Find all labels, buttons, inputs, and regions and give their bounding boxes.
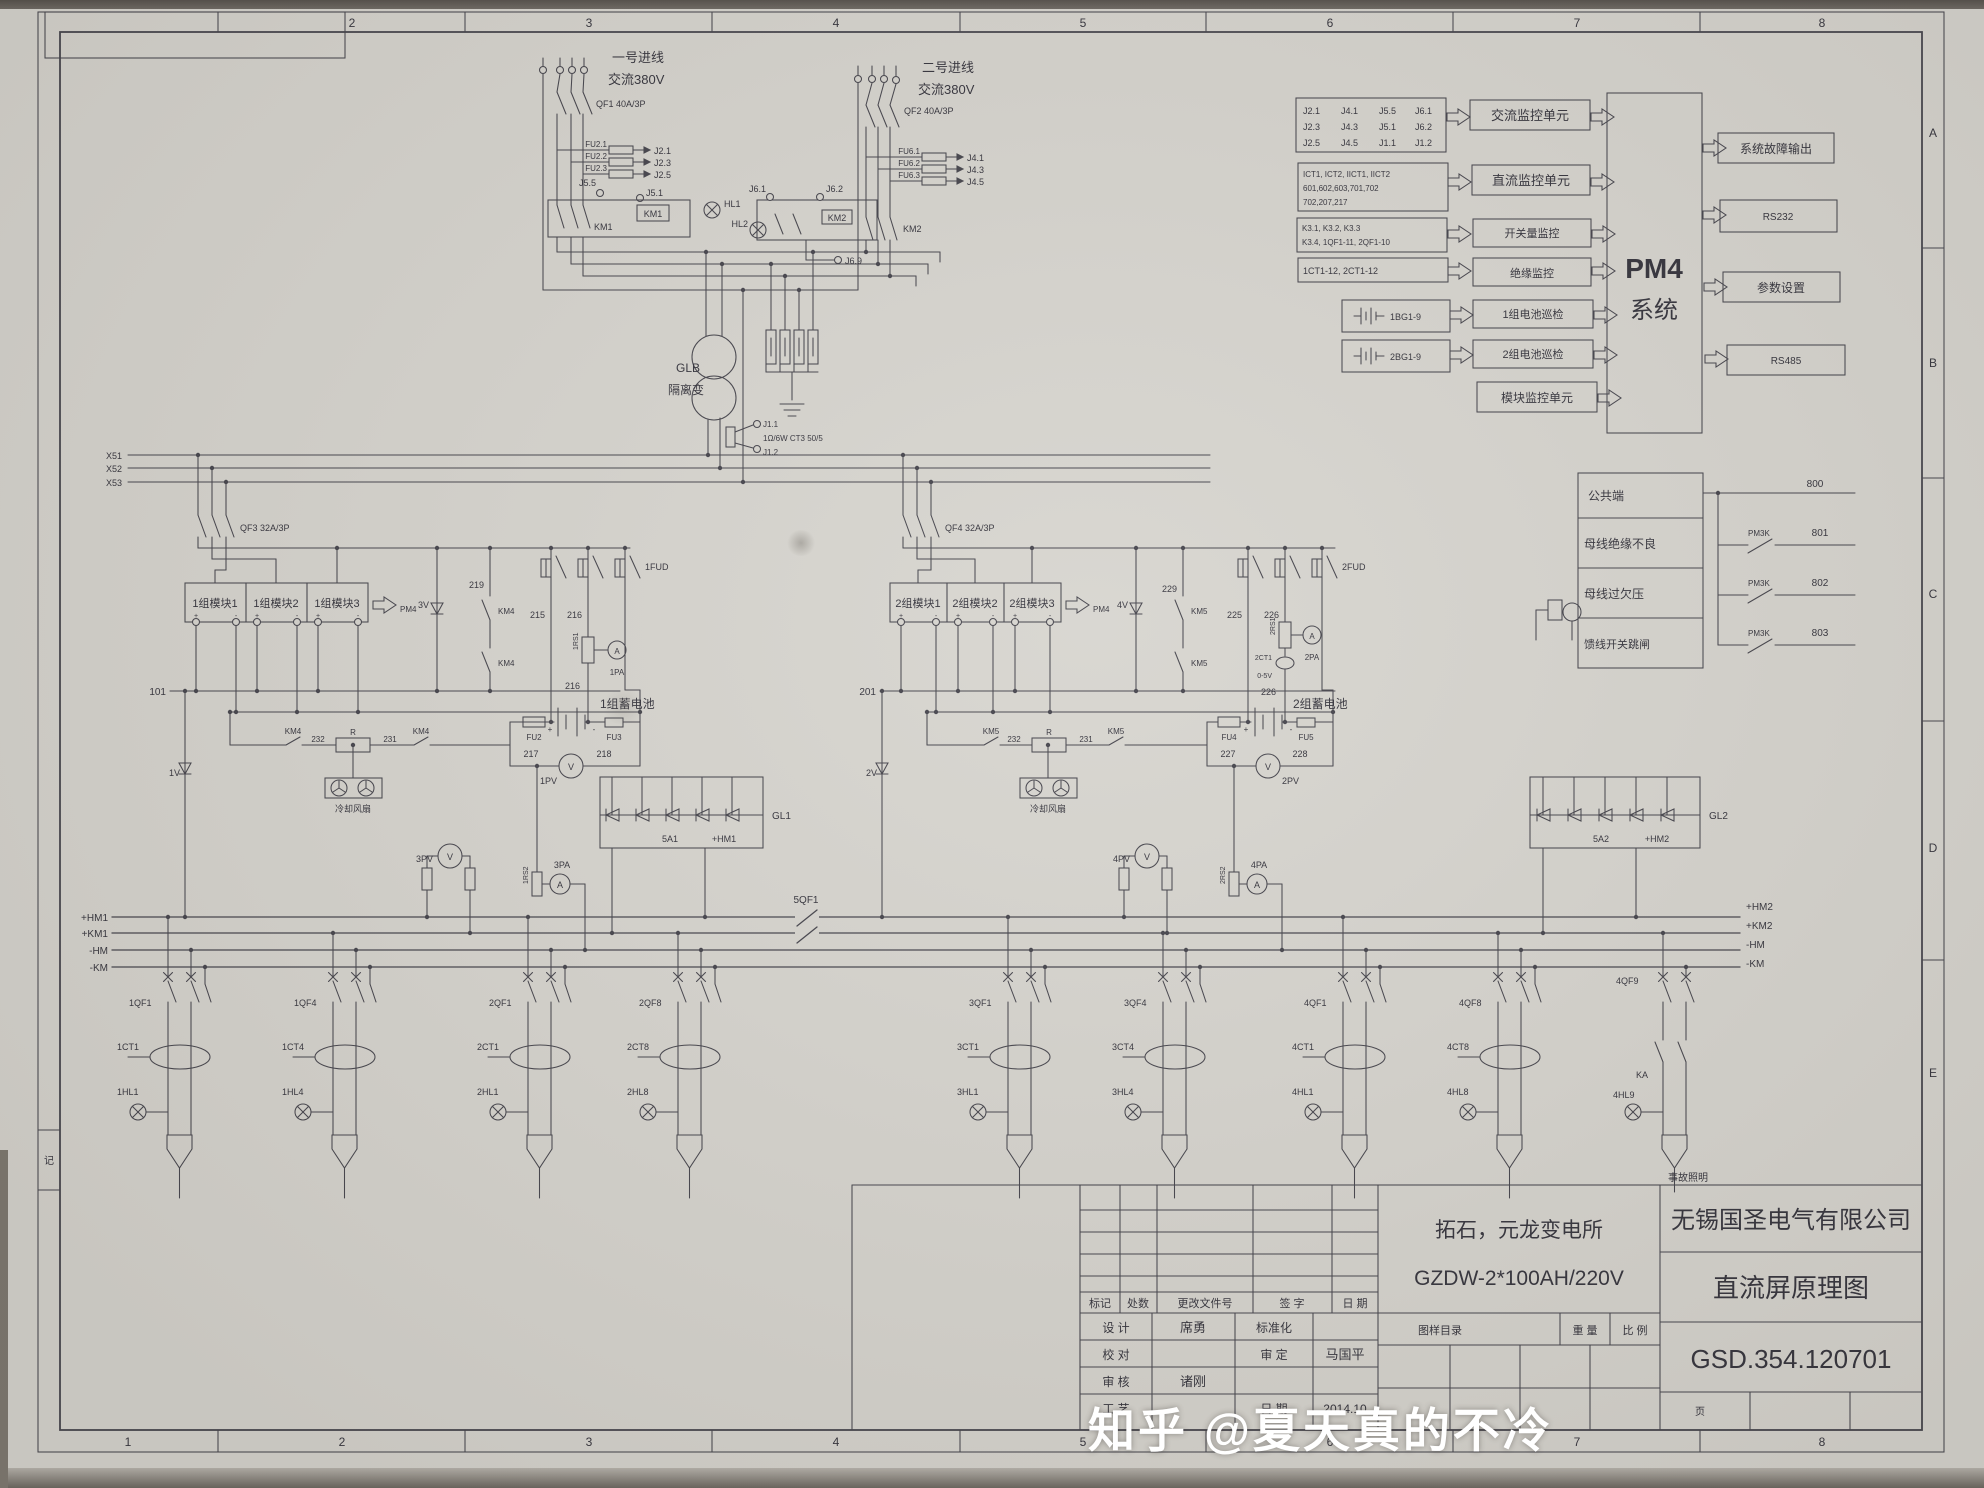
svg-text:1PA: 1PA <box>610 668 625 677</box>
svg-text:J2.3: J2.3 <box>1303 122 1320 132</box>
ac-bus-lines <box>128 455 1210 482</box>
svg-text:215: 215 <box>530 610 545 620</box>
x51: X51 <box>106 451 122 461</box>
ruler-top-6: 6 <box>1327 16 1334 30</box>
svg-text:KM4: KM4 <box>413 727 430 736</box>
svg-text:+: + <box>899 613 903 620</box>
qf1-label: QF1 40A/3P <box>596 99 646 109</box>
svg-text:J4.3: J4.3 <box>967 165 984 175</box>
svg-text:K3.1, K3.2, K3.3: K3.1, K3.2, K3.3 <box>1302 224 1361 233</box>
module-1-1: 1组模块1 <box>192 596 237 610</box>
svg-text:V: V <box>1265 762 1271 772</box>
svg-text:J4.5: J4.5 <box>967 177 984 187</box>
module-2-1: 2组模块1 <box>895 596 940 610</box>
svg-text:1CT4: 1CT4 <box>282 1042 304 1052</box>
svg-text:2RS1: 2RS1 <box>1270 617 1277 635</box>
svg-text:+HM2: +HM2 <box>1645 834 1669 844</box>
svg-text:审 定: 审 定 <box>1260 1347 1287 1362</box>
unit-insulation-monitor: 绝缘监控 <box>1510 266 1554 280</box>
svg-text:2FUD: 2FUD <box>1342 562 1366 572</box>
unit-dc-monitor: 直流监控单元 <box>1492 173 1570 188</box>
svg-text:日 期: 日 期 <box>1342 1297 1367 1310</box>
svg-text:签 字: 签 字 <box>1279 1296 1304 1310</box>
svg-text:2BG1-9: 2BG1-9 <box>1390 352 1421 362</box>
svg-text:ICT1, ICT2, IICT1, IICT2: ICT1, ICT2, IICT1, IICT2 <box>1303 170 1391 179</box>
svg-text:系统: 系统 <box>1630 297 1678 324</box>
svg-text:+: + <box>548 725 553 734</box>
svg-text:+: + <box>1244 725 1249 734</box>
svg-text:601,602,603,701,702: 601,602,603,701,702 <box>1303 184 1379 193</box>
ruler-top-3: 3 <box>586 16 593 30</box>
bus-hm2: +HM2 <box>1746 902 1773 913</box>
svg-text:KM5: KM5 <box>983 727 1000 736</box>
svg-text:2QF8: 2QF8 <box>639 998 662 1008</box>
bus-hm1: +HM1 <box>81 913 108 924</box>
svg-text:+: + <box>1013 613 1017 620</box>
hl1-label: HL1 <box>724 199 741 209</box>
svg-text:219: 219 <box>469 580 484 590</box>
svg-text:隔离变: 隔离变 <box>668 382 704 397</box>
svg-text:218: 218 <box>596 749 611 759</box>
svg-text:5: 5 <box>1080 1435 1087 1449</box>
svg-text:2PA: 2PA <box>1305 653 1320 662</box>
svg-text:4HL9: 4HL9 <box>1613 1090 1635 1100</box>
model-code: GZDW-2*100AH/220V <box>1414 1267 1624 1290</box>
svg-text:C: C <box>1929 587 1938 601</box>
svg-text:KM5: KM5 <box>1191 659 1208 668</box>
svg-text:J1.1: J1.1 <box>1379 138 1396 148</box>
svg-text:800: 800 <box>1807 479 1824 490</box>
svg-text:J1.2: J1.2 <box>1415 138 1432 148</box>
svg-text:3CT4: 3CT4 <box>1112 1042 1134 1052</box>
svg-text:2HL1: 2HL1 <box>477 1087 499 1097</box>
svg-text:2CT1: 2CT1 <box>477 1042 499 1052</box>
svg-text:231: 231 <box>1079 735 1093 744</box>
svg-text:FU4: FU4 <box>1221 733 1237 742</box>
svg-text:229: 229 <box>1162 584 1177 594</box>
svg-text:图样目录: 图样目录 <box>1418 1323 1462 1337</box>
svg-text:A: A <box>614 647 620 656</box>
svg-text:A: A <box>1309 632 1315 641</box>
km1-contact: KM1 <box>594 222 613 232</box>
svg-text:4PV: 4PV <box>1113 854 1130 864</box>
svg-text:3PV: 3PV <box>416 854 433 864</box>
ruler-top-2: 2 <box>349 16 356 30</box>
svg-text:702,207,217: 702,207,217 <box>1303 198 1348 207</box>
svg-text:217: 217 <box>523 749 538 759</box>
svg-text:FU2.3: FU2.3 <box>585 164 607 173</box>
svg-text:4HL1: 4HL1 <box>1292 1087 1314 1097</box>
svg-text:重 量: 重 量 <box>1572 1323 1597 1337</box>
svg-text:J5.1: J5.1 <box>646 188 663 198</box>
svg-text:3QF4: 3QF4 <box>1124 998 1147 1008</box>
svg-text:1V: 1V <box>169 768 180 778</box>
svg-text:1BG1-9: 1BG1-9 <box>1390 312 1421 322</box>
gl1-label: GL1 <box>772 811 791 822</box>
svg-text:3: 3 <box>586 1435 593 1449</box>
svg-text:J6.2: J6.2 <box>1415 122 1432 132</box>
svg-text:232: 232 <box>1007 735 1021 744</box>
bus-km2: +KM2 <box>1746 921 1773 932</box>
labels: 2 3 4 5 6 7 8 1 2 3 4 5 6 7 8 A B C D E … <box>44 16 1938 1449</box>
svg-text:馈线开关跳闸: 馈线开关跳闸 <box>1584 637 1650 651</box>
svg-text:227: 227 <box>1220 749 1235 759</box>
left-marker: 记 <box>44 1155 54 1167</box>
svg-text:2RS2: 2RS2 <box>1220 866 1227 884</box>
pm4-arrow-2: PM4 <box>1093 605 1110 614</box>
qf2-label: QF2 40A/3P <box>904 106 954 116</box>
svg-text:J5.5: J5.5 <box>1379 106 1396 116</box>
svg-text:+: + <box>255 613 259 620</box>
svg-text:231: 231 <box>383 735 397 744</box>
svg-text:J6.1: J6.1 <box>749 184 766 194</box>
module-1-3: 1组模块3 <box>314 596 359 610</box>
out-param: 参数设置 <box>1757 280 1805 295</box>
hl2-label: HL2 <box>731 219 748 229</box>
svg-text:J2.1: J2.1 <box>654 146 671 156</box>
svg-text:1RS1: 1RS1 <box>573 632 580 650</box>
svg-text:PM3K: PM3K <box>1748 629 1770 638</box>
svg-text:2: 2 <box>339 1435 346 1449</box>
svg-text:803: 803 <box>1812 628 1829 639</box>
bus-km-neg: -KM <box>90 963 108 974</box>
svg-text:PM3K: PM3K <box>1748 579 1770 588</box>
approver-name: 马国平 <box>1325 1347 1364 1362</box>
svg-text:J2.1: J2.1 <box>1303 106 1320 116</box>
svg-text:FU3: FU3 <box>606 733 622 742</box>
svg-text:KM4: KM4 <box>285 727 302 736</box>
svg-text:5A2: 5A2 <box>1593 834 1609 844</box>
battery2-label: 2组蓄电池 <box>1293 697 1348 711</box>
svg-text:228: 228 <box>1292 749 1307 759</box>
svg-text:D: D <box>1929 841 1938 855</box>
svg-text:802: 802 <box>1812 578 1829 589</box>
module-1-2: 1组模块2 <box>253 596 298 610</box>
svg-text:PM3K: PM3K <box>1748 529 1770 538</box>
svg-text:0-5V: 0-5V <box>1257 673 1272 680</box>
svg-text:FU6.2: FU6.2 <box>898 159 920 168</box>
svg-text:J4.1: J4.1 <box>967 153 984 163</box>
drawing-title: 直流屏原理图 <box>1713 1273 1869 1303</box>
out-sys-fault: 系统故障输出 <box>1740 141 1812 156</box>
svg-text:+: + <box>316 613 320 620</box>
ruler-top-5: 5 <box>1080 16 1087 30</box>
gl2-label: GL2 <box>1709 811 1728 822</box>
svg-text:-KM: -KM <box>1746 959 1764 970</box>
battery1-label: 1组蓄电池 <box>600 697 655 711</box>
svg-text:KM5: KM5 <box>1108 727 1125 736</box>
svg-text:2HL8: 2HL8 <box>627 1087 649 1097</box>
fan2-label: 冷却风扇 <box>1030 803 1066 814</box>
schematic-svg: 2 3 4 5 6 7 8 1 2 3 4 5 6 7 8 A B C D E … <box>0 0 1984 1488</box>
out-rs485: RS485 <box>1771 356 1802 367</box>
unit-batt2-patrol: 2组电池巡检 <box>1502 347 1563 361</box>
svg-text:+HM1: +HM1 <box>712 834 736 844</box>
x53: X53 <box>106 478 122 488</box>
svg-text:4PA: 4PA <box>1251 860 1267 870</box>
svg-text:2V: 2V <box>866 768 877 778</box>
svg-text:4HL8: 4HL8 <box>1447 1087 1469 1097</box>
svg-text:1CT1: 1CT1 <box>117 1042 139 1052</box>
svg-text:交流380V: 交流380V <box>918 82 975 97</box>
svg-text:2PV: 2PV <box>1282 776 1299 786</box>
svg-text:4QF9: 4QF9 <box>1616 976 1639 986</box>
unit-batt1-patrol: 1组电池巡检 <box>1502 307 1563 321</box>
incoming1-title: 一号进线 <box>612 50 664 65</box>
svg-text:2CT1: 2CT1 <box>1255 655 1272 662</box>
svg-text:3HL4: 3HL4 <box>1112 1087 1134 1097</box>
svg-text:1CT1-12, 2CT1-12: 1CT1-12, 2CT1-12 <box>1303 266 1378 276</box>
svg-text:1: 1 <box>125 1435 132 1449</box>
svg-text:B: B <box>1929 356 1937 370</box>
pm4-arrow-1: PM4 <box>400 605 417 614</box>
svg-text:-: - <box>593 725 596 734</box>
svg-text:KA: KA <box>1636 1070 1648 1080</box>
svg-text:FU6.3: FU6.3 <box>898 171 920 180</box>
svg-text:1QF4: 1QF4 <box>294 998 317 1008</box>
svg-text:216: 216 <box>567 610 582 620</box>
svg-text:225: 225 <box>1227 610 1242 620</box>
svg-text:母线过欠压: 母线过欠压 <box>1584 586 1644 601</box>
svg-text:母线绝缘不良: 母线绝缘不良 <box>1584 536 1656 551</box>
svg-text:4CT1: 4CT1 <box>1292 1042 1314 1052</box>
unit-module-monitor: 模块监控单元 <box>1501 391 1573 405</box>
svg-text:232: 232 <box>311 735 325 744</box>
svg-text:KM5: KM5 <box>1191 607 1208 616</box>
project-name: 拓石，元龙变电所 <box>1435 1219 1603 1242</box>
svg-text:J6.2: J6.2 <box>826 184 843 194</box>
qf4-label: QF4 32A/3P <box>945 523 995 533</box>
svg-text:A: A <box>1929 126 1937 140</box>
svg-text:比 例: 比 例 <box>1622 1323 1647 1337</box>
svg-text:J4.3: J4.3 <box>1341 122 1358 132</box>
svg-text:V: V <box>1144 852 1150 862</box>
svg-text:审 核: 审 核 <box>1102 1374 1129 1389</box>
svg-text:801: 801 <box>1812 528 1829 539</box>
tie-switch-label: 5QF1 <box>793 895 818 906</box>
svg-text:J1.1: J1.1 <box>763 420 779 429</box>
km1-coil: KM1 <box>644 209 663 219</box>
svg-text:设 计: 设 计 <box>1102 1321 1129 1335</box>
photo-of-schematic: 2 3 4 5 6 7 8 1 2 3 4 5 6 7 8 A B C D E … <box>0 0 1984 1488</box>
svg-text:1QF1: 1QF1 <box>129 998 152 1008</box>
km2-coil: KM2 <box>828 213 847 223</box>
svg-text:J4.1: J4.1 <box>1341 106 1358 116</box>
svg-text:J2.3: J2.3 <box>654 158 671 168</box>
svg-text:J4.5: J4.5 <box>1341 138 1358 148</box>
auditor-name: 诸刚 <box>1180 1374 1206 1389</box>
svg-text:-: - <box>1290 725 1293 734</box>
svg-text:KM4: KM4 <box>498 607 515 616</box>
bus-hm-neg: -HM <box>89 946 108 957</box>
svg-text:4QF1: 4QF1 <box>1304 998 1327 1008</box>
svg-text:4: 4 <box>833 1435 840 1449</box>
svg-text:+: + <box>956 613 960 620</box>
svg-text:2QF1: 2QF1 <box>489 998 512 1008</box>
svg-text:R: R <box>1046 728 1052 737</box>
svg-text:FU2.2: FU2.2 <box>585 152 607 161</box>
svg-text:V: V <box>568 762 574 772</box>
svg-text:2CT8: 2CT8 <box>627 1042 649 1052</box>
svg-text:标记: 标记 <box>1089 1296 1111 1310</box>
svg-text:5A1: 5A1 <box>662 834 678 844</box>
svg-text:E: E <box>1929 1066 1937 1080</box>
svg-text:J5.5: J5.5 <box>579 178 596 188</box>
bus-201: 201 <box>859 687 876 698</box>
svg-text:KM4: KM4 <box>498 659 515 668</box>
svg-text:4V: 4V <box>1117 600 1128 610</box>
module-2-2: 2组模块2 <box>952 596 997 610</box>
svg-text:3HL1: 3HL1 <box>957 1087 979 1097</box>
zhihu-watermark: 知乎 @夏天真的不冷 <box>1088 1392 1948 1461</box>
svg-text:3CT1: 3CT1 <box>957 1042 979 1052</box>
svg-text:-HM: -HM <box>1746 940 1765 951</box>
transformer-name: GLB <box>676 361 700 375</box>
incoming2-title: 二号进线 <box>922 60 974 75</box>
changeover-wire-nest <box>543 74 940 484</box>
svg-text:FU6.1: FU6.1 <box>898 147 920 156</box>
svg-text:K3.4, 1QF1-11, 2QF1-10: K3.4, 1QF1-11, 2QF1-10 <box>1302 238 1390 247</box>
svg-text:V: V <box>447 852 453 862</box>
svg-text:216: 216 <box>565 681 580 691</box>
x52: X52 <box>106 464 122 474</box>
svg-text:J2.5: J2.5 <box>1303 138 1320 148</box>
unit-ac-monitor: 交流监控单元 <box>1491 108 1569 123</box>
svg-text:交流380V: 交流380V <box>608 72 665 87</box>
svg-text:+: + <box>194 613 198 620</box>
svg-text:R: R <box>350 728 356 737</box>
svg-text:1Ω/6W CT3 50/5: 1Ω/6W CT3 50/5 <box>763 434 823 443</box>
svg-text:226: 226 <box>1261 687 1276 697</box>
module-2-3: 2组模块3 <box>1009 596 1054 610</box>
svg-text:4CT8: 4CT8 <box>1447 1042 1469 1052</box>
svg-text:3V: 3V <box>418 600 429 610</box>
emergency-lighting-label: 事故照明 <box>1668 1171 1708 1184</box>
dc-feeders <box>128 915 1694 1198</box>
svg-text:FU2: FU2 <box>526 733 542 742</box>
svg-text:1PV: 1PV <box>540 776 557 786</box>
svg-text:1HL4: 1HL4 <box>282 1087 304 1097</box>
bus-101: 101 <box>149 687 166 698</box>
pm4-name: PM4 <box>1625 253 1683 284</box>
svg-text:公共端: 公共端 <box>1588 489 1624 503</box>
ruler-top-7: 7 <box>1574 16 1581 30</box>
svg-text:FU2.1: FU2.1 <box>585 140 607 149</box>
out-rs232: RS232 <box>1763 212 1794 223</box>
km2-contact: KM2 <box>903 224 922 234</box>
svg-text:4QF8: 4QF8 <box>1459 998 1482 1008</box>
svg-text:FU5: FU5 <box>1298 733 1314 742</box>
isolation-transformer <box>692 330 818 470</box>
group2-circuit <box>876 453 1700 952</box>
drawing-number: GSD.354.120701 <box>1691 1344 1892 1374</box>
svg-text:J2.5: J2.5 <box>654 170 671 180</box>
svg-text:J5.1: J5.1 <box>1379 122 1396 132</box>
qf3-label: QF3 32A/3P <box>240 523 290 533</box>
svg-text:1HL1: 1HL1 <box>117 1087 139 1097</box>
svg-text:J6.9: J6.9 <box>845 256 862 266</box>
svg-text:1FUD: 1FUD <box>645 562 669 572</box>
ruler-top-8: 8 <box>1819 16 1826 30</box>
svg-text:A: A <box>1254 880 1260 890</box>
svg-text:A: A <box>557 880 563 890</box>
svg-text:处数: 处数 <box>1127 1297 1149 1310</box>
svg-text:3PA: 3PA <box>554 860 570 870</box>
ruler-top-4: 4 <box>833 16 840 30</box>
unit-switch-monitor: 开关量监控 <box>1505 226 1560 240</box>
bus-km1: +KM1 <box>82 929 109 940</box>
svg-text:3QF1: 3QF1 <box>969 998 992 1008</box>
fan1-label: 冷却风扇 <box>335 803 371 814</box>
svg-text:J6.1: J6.1 <box>1415 106 1432 116</box>
company-name: 无锡国圣电气有限公司 <box>1671 1207 1911 1234</box>
svg-text:J1.2: J1.2 <box>763 448 779 457</box>
svg-text:1RS2: 1RS2 <box>523 866 530 884</box>
svg-text:校 对: 校 对 <box>1102 1347 1129 1362</box>
svg-text:更改文件号: 更改文件号 <box>1178 1296 1233 1310</box>
svg-text:标准化: 标准化 <box>1256 1321 1292 1335</box>
designer-name: 席勇 <box>1180 1320 1206 1335</box>
